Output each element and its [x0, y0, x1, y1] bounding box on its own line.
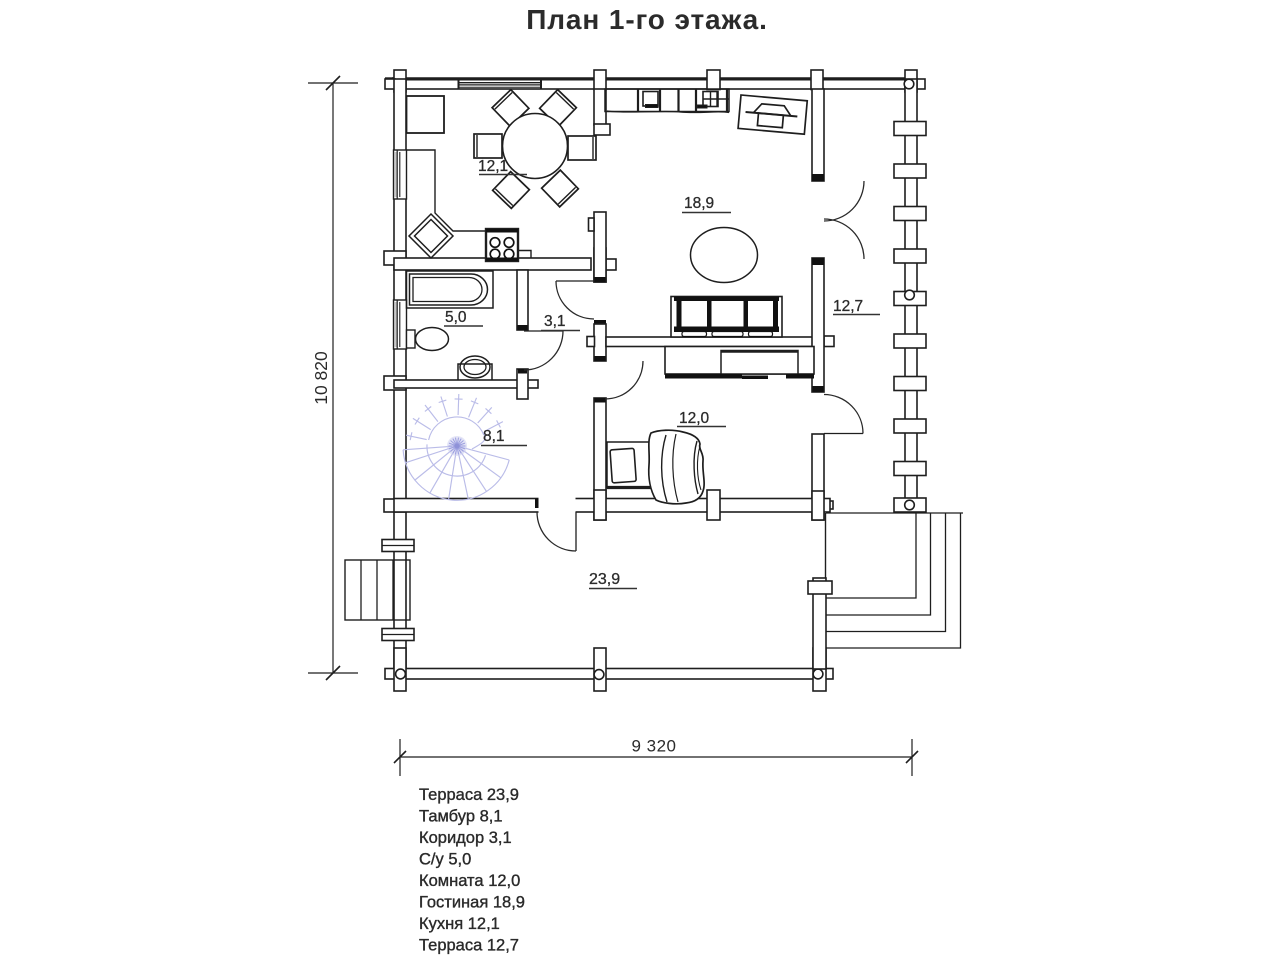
svg-text:8,1: 8,1 [483, 428, 505, 445]
svg-text:Терраса 23,9: Терраса 23,9 [419, 786, 519, 804]
svg-text:С/у 5,0: С/у 5,0 [419, 851, 471, 869]
svg-text:Терраса 12,7: Терраса 12,7 [419, 937, 519, 955]
svg-text:Коридор 3,1: Коридор 3,1 [419, 829, 512, 847]
svg-text:Кухня 12,1: Кухня 12,1 [419, 915, 500, 933]
svg-text:9 320: 9 320 [631, 737, 676, 756]
svg-text:18,9: 18,9 [684, 195, 714, 212]
svg-text:12,0: 12,0 [679, 410, 710, 427]
svg-text:Тамбур 8,1: Тамбур 8,1 [419, 808, 503, 826]
svg-text:Комната 12,0: Комната 12,0 [419, 872, 520, 890]
svg-text:План 1-го этажа.: План 1-го этажа. [526, 4, 768, 35]
svg-text:5,0: 5,0 [445, 309, 467, 326]
svg-text:12,1: 12,1 [478, 158, 508, 175]
svg-text:12,7: 12,7 [833, 298, 863, 315]
svg-text:23,9: 23,9 [589, 571, 620, 588]
svg-text:Гостиная 18,9: Гостиная 18,9 [419, 894, 525, 912]
svg-text:3,1: 3,1 [544, 313, 566, 330]
svg-text:10 820: 10 820 [311, 351, 331, 405]
